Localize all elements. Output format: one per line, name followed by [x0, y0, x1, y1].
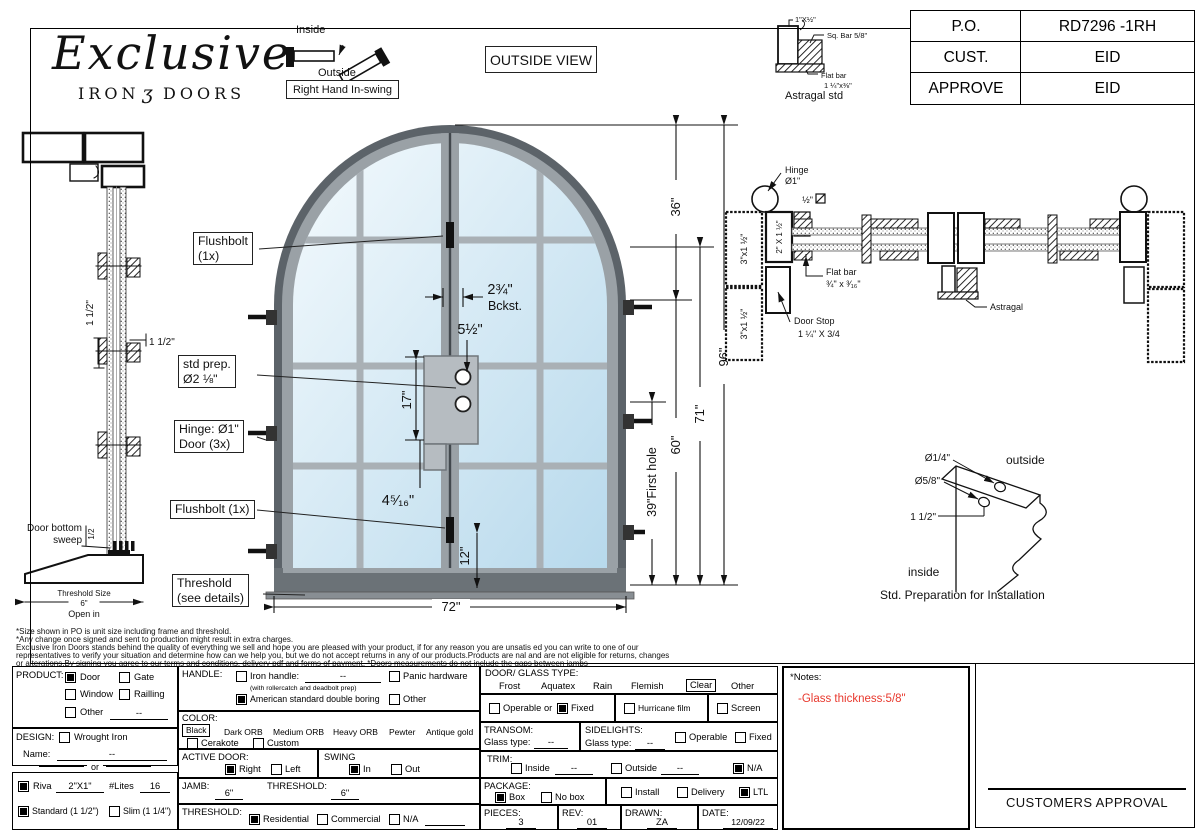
form-glass-type-section: DOOR/ GLASS TYPE: Frost Aquatex Rain Fle… [480, 666, 778, 694]
panic-hardware-label: Panic hardware [403, 671, 468, 682]
checkbox-sidelights-fixed[interactable] [735, 732, 746, 743]
notes-box: *Notes: -Glass thickness:5/8" [782, 666, 970, 830]
lites-label: #Lites [109, 781, 134, 792]
or-divider: or [12, 762, 178, 772]
trim-outside-value[interactable]: -- [661, 762, 699, 775]
checkbox-iron-handle[interactable] [236, 671, 247, 682]
po-label: P.O. [910, 10, 1022, 43]
checkbox-custom-color[interactable] [253, 738, 264, 749]
glass-clear-selected[interactable]: Clear [686, 679, 716, 692]
product-window-label: Window [80, 689, 113, 700]
install-label: Install [635, 787, 659, 798]
callout-hinge: Hinge: Ø1" Door (3x) [174, 420, 244, 453]
form-delivery-section: Install Delivery LTL [606, 778, 778, 805]
operable-or-label: or [544, 703, 552, 714]
checkbox-swing-out[interactable] [391, 764, 402, 775]
checkbox-trim-inside[interactable] [511, 763, 522, 774]
product-other-label: Other [80, 707, 103, 718]
ltl-label: LTL [753, 787, 768, 798]
screen-label: Screen [731, 703, 760, 714]
design-name-label: Name: [23, 749, 50, 760]
checkbox-commercial[interactable] [317, 814, 328, 825]
checkbox-product-window[interactable] [65, 689, 76, 700]
checkbox-screen[interactable] [717, 703, 728, 714]
threshold-na-value[interactable] [425, 813, 465, 826]
checkbox-american-standard[interactable] [236, 694, 247, 705]
checkbox-active-left[interactable] [271, 764, 282, 775]
color-pewter[interactable]: Pewter [389, 727, 415, 738]
form-screen-cell: Screen [708, 694, 778, 722]
sidelights-operable-label: Operable [689, 732, 727, 743]
form-handle-section: HANDLE: Iron handle: -- (with rollercatc… [178, 666, 480, 711]
sidelights-fixed-label: Fixed [749, 732, 772, 743]
trim-na-label: N/A [747, 763, 763, 774]
color-label: COLOR: [182, 713, 218, 724]
product-door-label: Door [80, 672, 100, 683]
checkbox-product-door[interactable] [65, 672, 76, 683]
sidelights-label: SIDELIGHTS: [585, 725, 643, 736]
swing-in-label: In [363, 764, 371, 775]
company-logo-ornament: ʒ [142, 82, 157, 104]
form-rev-cell: REV: 01 [558, 805, 621, 830]
swing-out-label: Out [405, 764, 420, 775]
trim-label: TRIM: [487, 754, 512, 765]
color-heavy-orb[interactable]: Heavy ORB [333, 727, 378, 738]
checkbox-wrought-iron[interactable] [59, 732, 70, 743]
slim-label: Slim (1 1/4") [123, 806, 171, 817]
form-threshold-section: THRESHOLD: Residential Commercial N/A [178, 804, 480, 830]
checkbox-trim-outside[interactable] [611, 763, 622, 774]
company-logo-iron: IRON [78, 84, 139, 103]
design-label: DESIGN: [16, 732, 54, 743]
active-right-label: Right [239, 764, 261, 775]
callout-flushbolt-top-line1: Flushbolt [198, 234, 248, 249]
form-drawn-cell: DRAWN: ZA [621, 805, 698, 830]
american-standard-label: American standard double boring [250, 694, 380, 705]
color-dark-orb[interactable]: Dark ORB [224, 727, 263, 738]
form-operable-fixed-cell: Operable or Fixed [480, 694, 615, 722]
notes-title: *Notes: [790, 672, 821, 683]
outside-view-label: OUTSIDE VIEW [485, 46, 597, 73]
glass-aquatex[interactable]: Aquatex [541, 681, 575, 692]
transom-label: TRANSOM: [484, 725, 533, 736]
handle-other-label: Other [403, 694, 426, 705]
checkbox-hurricane-film[interactable] [624, 703, 635, 714]
riva-size-value[interactable]: 2"X1" [56, 780, 104, 793]
custom-color-label: Custom [267, 738, 299, 749]
form-riva-section: Riva 2"X1" #Lites 16 Standard (1 1/2") S… [12, 772, 178, 830]
glass-rain[interactable]: Rain [593, 681, 612, 692]
jamb-threshold-value[interactable]: 6" [331, 787, 359, 800]
wrought-iron-label: Wrought Iron [74, 732, 128, 743]
color-medium-orb[interactable]: Medium ORB [273, 727, 324, 738]
form-swing-section: SWING In Out [318, 749, 480, 778]
checkbox-swing-in[interactable] [349, 764, 360, 775]
checkbox-handle-other[interactable] [389, 694, 400, 705]
callout-flushbolt-bottom: Flushbolt (1x) [170, 500, 255, 519]
trim-inside-label: Inside [525, 763, 550, 774]
cerakote-label: Cerakote [201, 738, 239, 749]
form-transom-section: TRANSOM: Glass type: -- [480, 722, 580, 751]
form-color-section: COLOR: Black Dark ORB Medium ORB Heavy O… [178, 711, 480, 749]
color-black-selected[interactable]: Black [182, 724, 210, 737]
checkbox-fixed[interactable] [557, 703, 568, 714]
sidelights-glass-type-value[interactable]: -- [635, 737, 665, 750]
callout-flushbolt-top: Flushbolt (1x) [193, 232, 253, 265]
checkbox-product-gate[interactable] [119, 672, 130, 683]
company-logo-script: Exclusive [52, 26, 291, 80]
fixed-label: Fixed [571, 703, 594, 714]
standard-label: Standard (1 1/2") [32, 806, 99, 817]
glass-other[interactable]: Other [731, 681, 754, 692]
cust-label: CUST. [910, 41, 1022, 74]
checkbox-slim[interactable] [109, 806, 120, 817]
jamb-value[interactable]: 6" [215, 787, 243, 800]
hurricane-film-label: Hurricane film [638, 703, 690, 714]
glass-thickness-note: -Glass thickness:5/8" [798, 694, 906, 705]
callout-std-prep: std prep. Ø2 ⅛" [178, 355, 236, 388]
product-gate-label: Gate [134, 672, 154, 683]
date-value[interactable]: 12/09/22 [723, 816, 773, 829]
callout-flushbolt-top-line2: (1x) [198, 249, 248, 264]
product-other-value[interactable]: -- [110, 707, 168, 720]
po-value: RD7296 -1RH [1020, 10, 1195, 43]
jamb-label: JAMB: [182, 781, 209, 792]
transom-glass-type-label: Glass type: [484, 737, 531, 748]
iron-handle-label: Iron handle: [250, 671, 299, 682]
callout-hinge-line2: Door (3x) [179, 437, 239, 452]
color-antique-gold[interactable]: Antique gold [426, 727, 473, 738]
iron-handle-value[interactable]: -- [305, 670, 381, 683]
operable-label: Operable [503, 703, 541, 714]
lites-value[interactable]: 16 [140, 780, 170, 793]
or-divider-text: or [87, 762, 103, 772]
form-sidelights-section: SIDELIGHTS: Glass type: -- Operable Fixe… [580, 722, 778, 751]
delivery-label: Delivery [691, 787, 725, 798]
residential-label: Residential [263, 814, 309, 825]
checkbox-trim-na[interactable] [733, 763, 744, 774]
checkbox-residential[interactable] [249, 814, 260, 825]
form-hurricane-cell: Hurricane film [615, 694, 708, 722]
checkbox-delivery[interactable] [677, 787, 688, 798]
form-jamb-section: JAMB: 6" THRESHOLD: 6" [178, 778, 480, 804]
checkbox-panic-hardware[interactable] [389, 671, 400, 682]
trim-inside-value[interactable]: -- [555, 762, 593, 775]
customers-approval-label: CUSTOMERS APPROVAL [988, 795, 1186, 810]
glass-frost[interactable]: Frost [499, 681, 520, 692]
checkbox-ltl[interactable] [739, 787, 750, 798]
threshold-na-label: N/A [403, 814, 419, 825]
checkbox-active-right[interactable] [225, 764, 236, 775]
active-left-label: Left [285, 764, 301, 775]
product-railling-label: Railling [134, 689, 165, 700]
callout-threshold-line1: Threshold [177, 576, 244, 591]
form-date-cell: DATE: 12/09/22 [698, 805, 778, 830]
trim-outside-label: Outside [625, 763, 657, 774]
package-label: PACKAGE: [484, 781, 531, 792]
jamb-threshold-label: THRESHOLD: [267, 781, 327, 792]
checkbox-threshold-na[interactable] [389, 814, 400, 825]
checkbox-install[interactable] [621, 787, 632, 798]
form-product-section: PRODUCT: Door Gate Window Railling Other… [12, 666, 178, 728]
checkbox-sidelights-operable[interactable] [675, 732, 686, 743]
drawing-sheet: Inside Outside 1"X½" Sq. Bar 5/8" Flat b… [0, 0, 1200, 835]
active-door-label: ACTIVE DOOR: [182, 752, 249, 763]
sidelights-glass-type-label: Glass type: [585, 738, 632, 749]
cust-value: EID [1020, 41, 1195, 74]
checkbox-product-railling[interactable] [119, 689, 130, 700]
checkbox-package-box[interactable] [495, 792, 506, 803]
checkbox-cerakote[interactable] [187, 738, 198, 749]
rev-value[interactable]: 01 [577, 816, 607, 829]
threshold-label: THRESHOLD: [182, 807, 242, 818]
glass-flemish[interactable]: Flemish [631, 681, 664, 692]
callout-std-prep-line2: Ø2 ⅛" [183, 372, 231, 387]
product-label: PRODUCT: [16, 670, 64, 681]
approve-label: APPROVE [910, 72, 1022, 105]
approval-signature-line[interactable] [988, 788, 1186, 790]
glass-type-label: DOOR/ GLASS TYPE: [485, 668, 578, 679]
iron-handle-note: (with rollercatch and deadbolt prep) [250, 683, 357, 694]
handle-label: HANDLE: [182, 669, 222, 680]
design-name-value[interactable]: -- [57, 748, 167, 761]
approve-value: EID [1020, 72, 1195, 105]
callout-hinge-line1: Hinge: Ø1" [179, 422, 239, 437]
sheet-border [30, 28, 1195, 664]
riva-label: Riva [33, 781, 52, 792]
swing-type-label: Right Hand In-swing [286, 80, 399, 99]
form-active-door-section: ACTIVE DOOR: Right Left [178, 749, 318, 778]
transom-glass-type-value[interactable]: -- [534, 736, 568, 749]
package-nobox-label: No box [555, 792, 584, 803]
checkbox-product-other[interactable] [65, 707, 76, 718]
company-logo-doors: DOORS [163, 84, 245, 103]
callout-threshold: Threshold (see details) [172, 574, 249, 607]
form-pieces-cell: PIECES: 3 [480, 805, 558, 830]
astragal-dim-top: 1"X½" [795, 15, 816, 24]
checkbox-package-nobox[interactable] [541, 792, 552, 803]
swing-label: SWING [324, 752, 356, 763]
commercial-label: Commercial [331, 814, 381, 825]
callout-threshold-line2: (see details) [177, 591, 244, 606]
form-design-section: DESIGN: Wrought Iron Name: -- [12, 728, 178, 766]
pieces-value[interactable]: 3 [506, 816, 536, 829]
checkbox-operable[interactable] [489, 703, 500, 714]
callout-std-prep-line1: std prep. [183, 357, 231, 372]
checkbox-standard[interactable] [18, 806, 29, 817]
form-trim-section: TRIM: Inside -- Outside -- N/A [480, 751, 778, 778]
package-box-label: Box [509, 792, 525, 803]
form-package-section: PACKAGE: Box No box [480, 778, 606, 805]
checkbox-riva[interactable] [18, 781, 29, 792]
drawn-value[interactable]: ZA [647, 816, 677, 829]
